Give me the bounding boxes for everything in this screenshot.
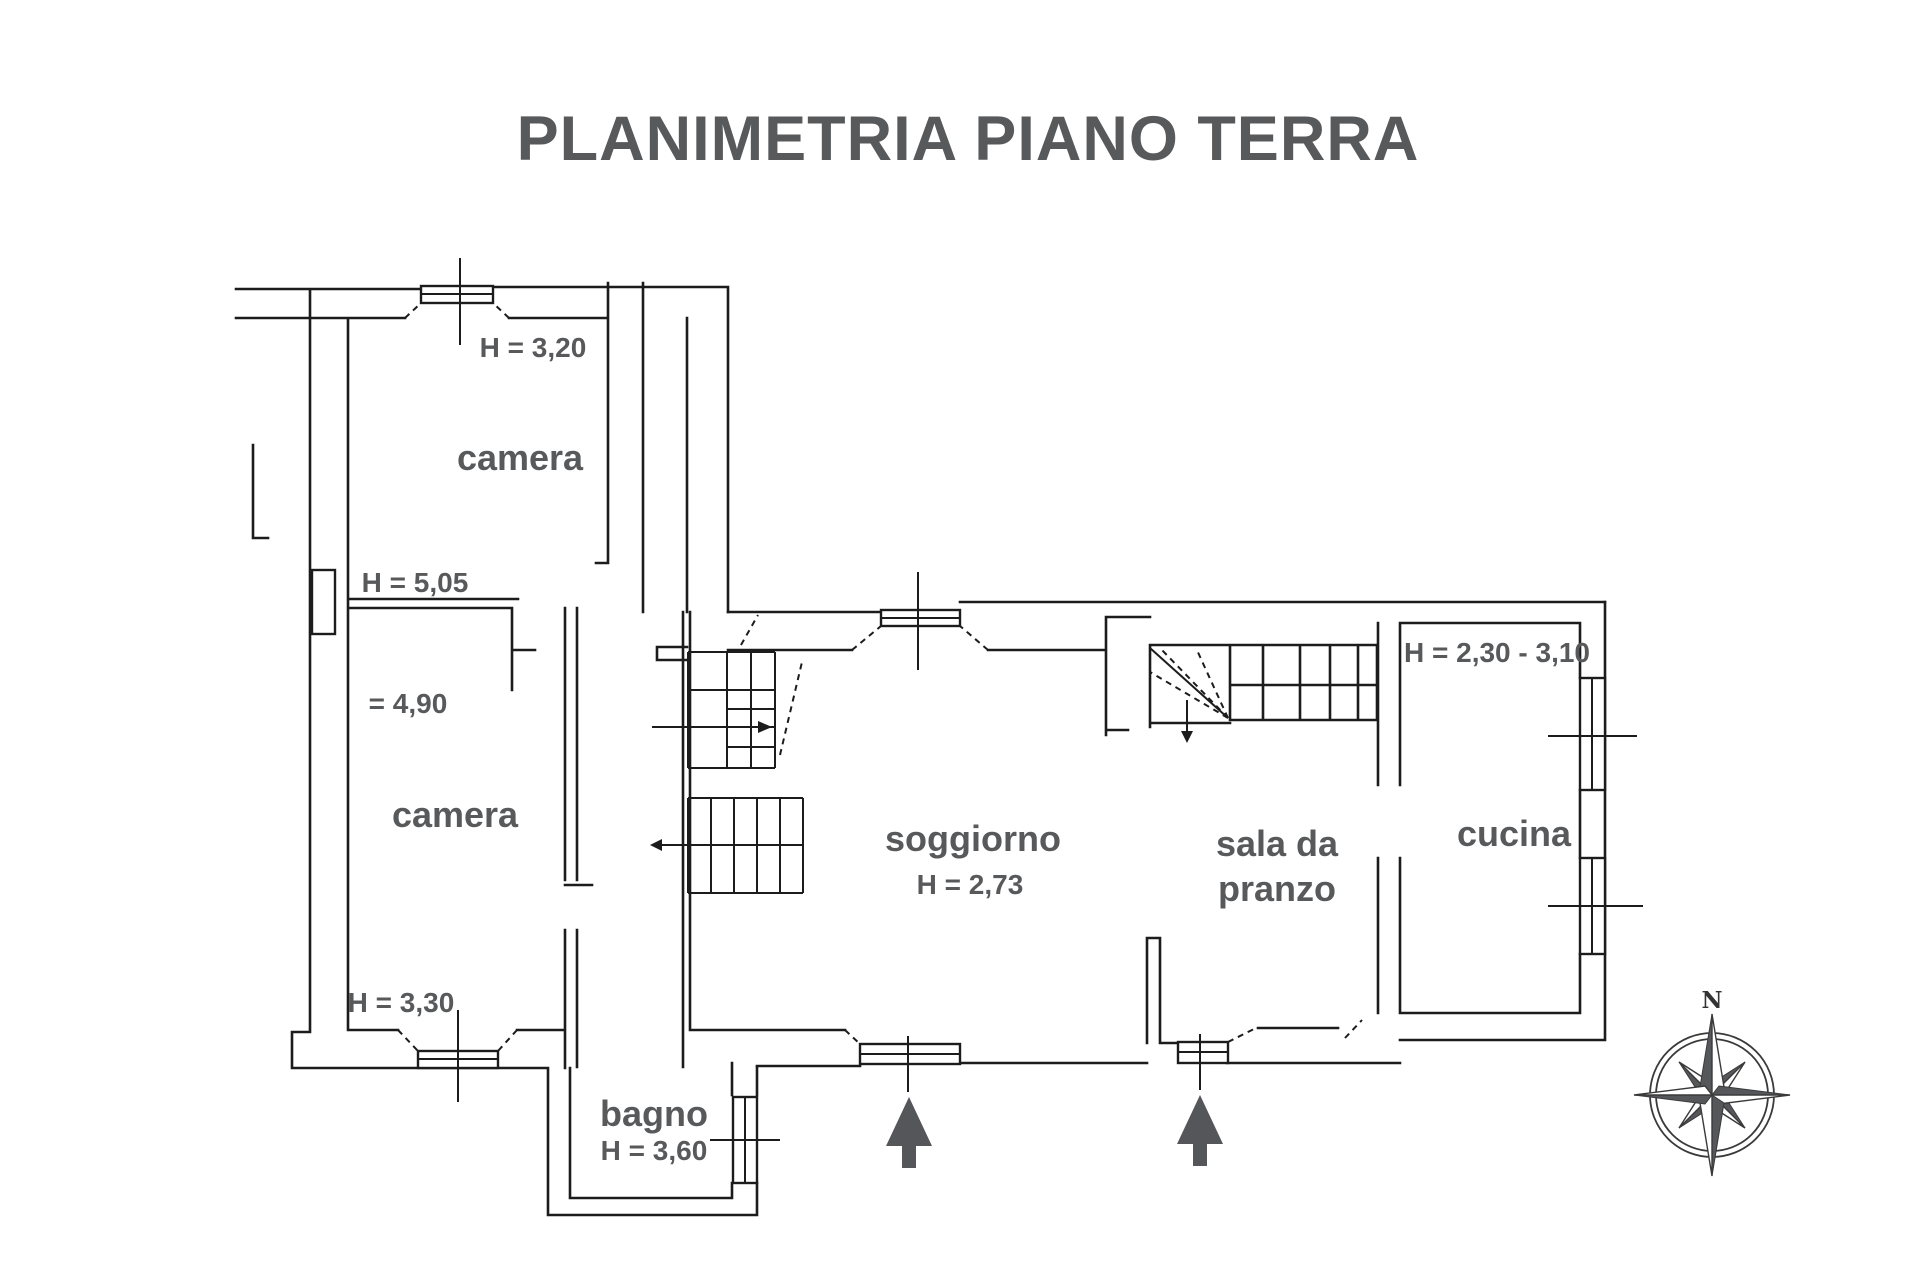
labels: PLANIMETRIA PIANO TERRA H = 3,20 camera … xyxy=(348,104,1590,1166)
window-camera2-bottom xyxy=(418,1010,498,1102)
soggiorno-height-label: H = 2,73 xyxy=(917,869,1024,900)
stair-down-arrow-icon xyxy=(1181,731,1193,743)
camera1-height-label: H = 3,20 xyxy=(480,332,587,363)
window-cucina-upper xyxy=(1548,678,1637,790)
camera2-height-note-label: = 4,90 xyxy=(369,688,448,719)
compass-rose: N xyxy=(1634,987,1790,1176)
entrance-arrows xyxy=(886,1095,1223,1168)
door-sala-da-pranzo xyxy=(1178,1034,1228,1090)
floor-plan-drawing: N PLANIMETRIA PIANO TERRA H = 3,20 camer… xyxy=(0,0,1920,1280)
window-bagno xyxy=(710,1097,780,1183)
stair-left-arrow-icon xyxy=(650,839,662,851)
cucina-label: cucina xyxy=(1457,813,1572,854)
compass-north-label: N xyxy=(1701,987,1722,1014)
door-soggiorno xyxy=(860,1036,960,1092)
sala-da-pranzo-label-line2: pranzo xyxy=(1218,868,1336,909)
dashed-reveal-lines xyxy=(398,303,1362,1051)
camera2-height-label: H = 3,30 xyxy=(348,987,455,1018)
windows xyxy=(312,258,1643,1183)
page-title: PLANIMETRIA PIANO TERRA xyxy=(517,104,1420,174)
staircase-winder xyxy=(1150,648,1228,743)
bagno-label: bagno xyxy=(600,1093,708,1134)
window-cucina-lower xyxy=(1548,858,1643,954)
camera1-label: camera xyxy=(457,437,584,478)
cucina-height-label: H = 2,30 - 3,10 xyxy=(1404,637,1590,668)
staircase-left xyxy=(650,652,803,893)
camera1-height-lower-label: H = 5,05 xyxy=(362,567,469,598)
entrance-arrow-icon-right xyxy=(1177,1095,1223,1166)
stair-up-arrow-icon xyxy=(758,721,772,733)
camera2-label: camera xyxy=(392,794,519,835)
soggiorno-label: soggiorno xyxy=(885,818,1061,859)
sala-da-pranzo-label-line1: sala da xyxy=(1216,823,1339,864)
entrance-arrow-icon-left xyxy=(886,1097,932,1168)
walls-left-wing xyxy=(236,283,757,1215)
floor-plan-page: N PLANIMETRIA PIANO TERRA H = 3,20 camer… xyxy=(0,0,1920,1280)
window-soggiorno-top xyxy=(881,572,960,670)
bagno-height-label: H = 3,60 xyxy=(601,1135,708,1166)
window-left-wall xyxy=(312,570,335,634)
